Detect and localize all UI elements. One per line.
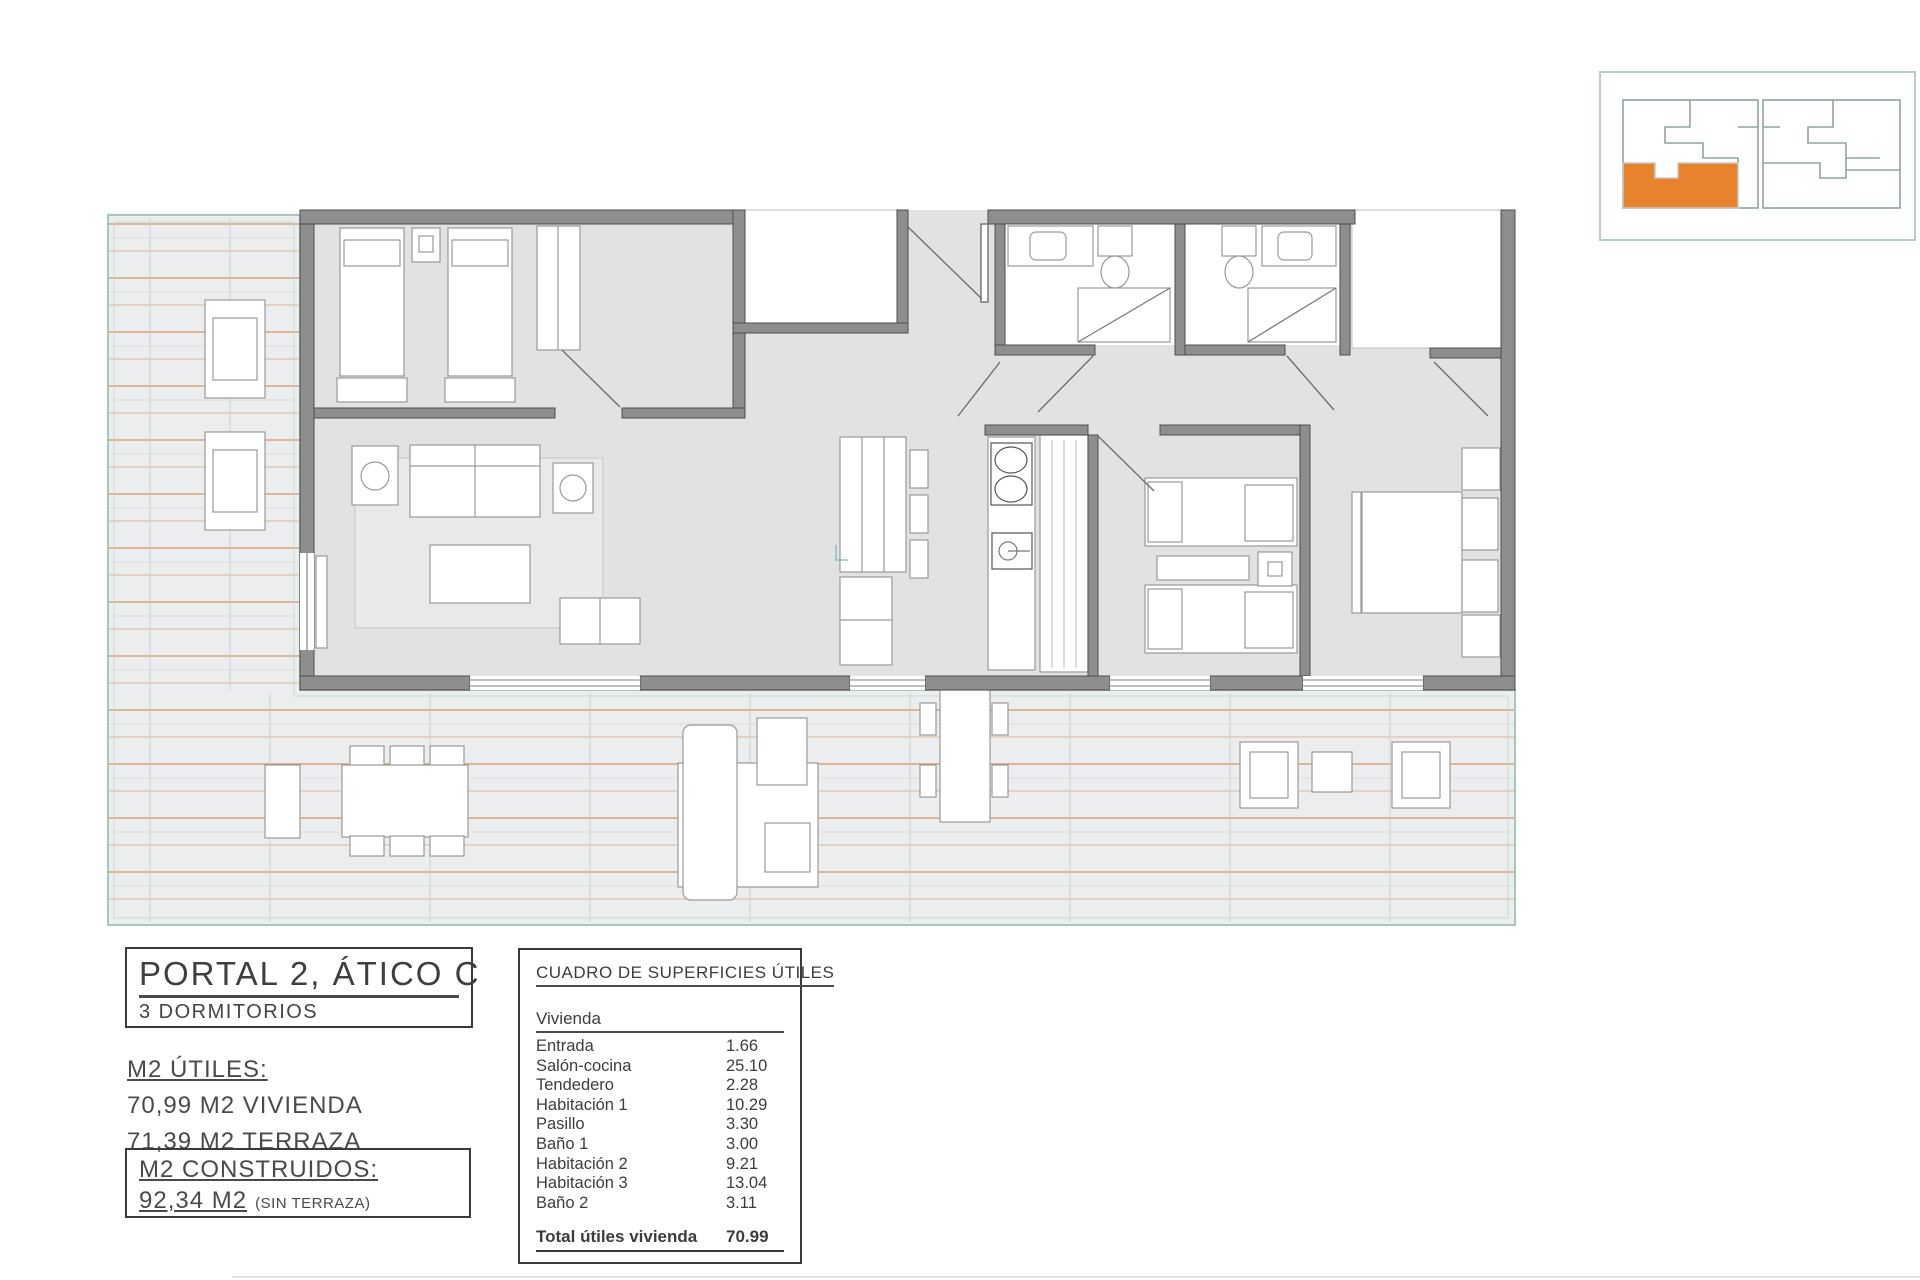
bedroom2-furniture — [1145, 478, 1297, 653]
tendedero — [1040, 435, 1088, 672]
m2-construidos-value: 92,34 M2 — [139, 1187, 247, 1214]
table-row: Entrada1.66 — [536, 1037, 784, 1057]
double-bed — [1362, 492, 1462, 613]
wall-top-a — [300, 210, 745, 224]
areas-table: CUADRO DE SUPERFICIES ÚTILES Vivienda En… — [518, 948, 802, 1264]
table-row: Tendedero2.28 — [536, 1076, 784, 1096]
kitchen-tall-cabinet — [840, 437, 906, 572]
bedroom1-right-wall — [733, 210, 745, 418]
table-row: Baño 13.00 — [536, 1135, 784, 1155]
total-label: Total útiles vivienda — [536, 1227, 726, 1247]
nightstand — [1157, 556, 1249, 580]
entry-porch-void — [745, 210, 897, 333]
wall-right — [1501, 210, 1515, 690]
side-table-right — [553, 463, 593, 513]
terrace-table — [940, 690, 990, 822]
plan-sheet: PORTAL 2, ÁTICO C 3 DORMITORIOS M2 ÚTILE… — [0, 0, 1920, 1280]
salon-furniture — [352, 445, 640, 644]
key-plan-highlight-unit — [1623, 163, 1738, 208]
terrace-bench — [265, 765, 300, 838]
total-value: 70.99 — [726, 1227, 769, 1247]
page-title: PORTAL 2, ÁTICO C — [139, 955, 459, 998]
key-plan — [1600, 72, 1915, 240]
porch-bottom-wall — [733, 323, 908, 333]
porch-right-wall — [897, 210, 908, 333]
nightstand — [1462, 448, 1500, 490]
m2-construidos-block: M2 CONSTRUIDOS: 92,34 M2(SIN TERRAZA) — [125, 1148, 471, 1218]
kitchen-low-cabinet — [840, 577, 892, 665]
areas-table-title: CUADRO DE SUPERFICIES ÚTILES — [536, 963, 834, 987]
table-row: Baño 23.11 — [536, 1194, 784, 1214]
side-table-left — [352, 446, 398, 505]
bedroom2-left-wall — [1088, 435, 1098, 676]
toilet — [1098, 226, 1132, 256]
sliding-door-leaf — [316, 556, 327, 648]
void-notch — [1352, 210, 1501, 348]
table-row: Habitación 313.04 — [536, 1174, 784, 1194]
m2-utiles-heading: M2 ÚTILES: — [127, 1052, 363, 1088]
m2-construidos-note: (SIN TERRAZA) — [255, 1195, 370, 1212]
front-door-leaf — [981, 224, 988, 302]
bbq-grill — [683, 725, 737, 900]
table-row: Habitación 29.21 — [536, 1155, 784, 1175]
table-row: Salón-cocina25.10 — [536, 1057, 784, 1077]
dining-table — [342, 765, 468, 837]
title-block: PORTAL 2, ÁTICO C 3 DORMITORIOS — [125, 947, 473, 1028]
page-subtitle: 3 DORMITORIOS — [139, 1001, 459, 1024]
bed-runner — [1352, 492, 1361, 613]
areas-table-total-row: Total útiles vivienda 70.99 — [536, 1227, 784, 1252]
m2-utiles-block: M2 ÚTILES: 70,99 M2 VIVIENDA 71,39 M2 TE… — [127, 1052, 363, 1160]
table-row: Habitación 110.29 — [536, 1096, 784, 1116]
m2-construidos-heading: M2 CONSTRUIDOS: — [139, 1154, 457, 1185]
toilet — [1222, 226, 1256, 256]
coffee-table — [430, 545, 530, 603]
table-row: Pasillo3.30 — [536, 1115, 784, 1135]
nightstand — [1462, 615, 1500, 657]
areas-table-rows: Entrada1.66 Salón-cocina25.10 Tendedero2… — [536, 1037, 784, 1213]
bedroom2-right-wall — [1300, 425, 1310, 676]
wall-top-b — [988, 210, 1355, 224]
sheet-bottom-edge — [232, 1276, 1920, 1278]
areas-table-group-header: Vivienda — [536, 1009, 784, 1033]
side-table — [1312, 752, 1352, 792]
m2-utiles-vivienda: 70,99 M2 VIVIENDA — [127, 1088, 363, 1124]
